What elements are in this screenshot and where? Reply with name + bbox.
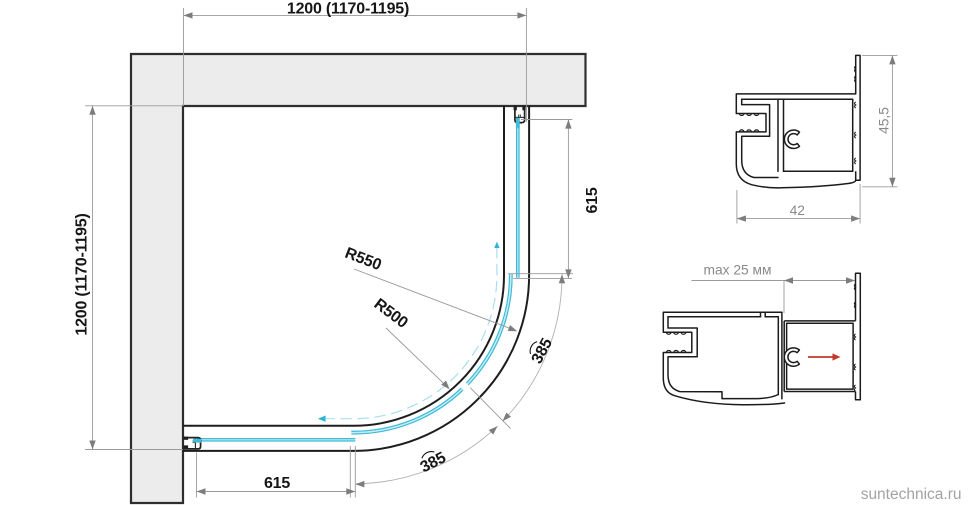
- svg-text:suntechnica.ru: suntechnica.ru: [861, 486, 962, 503]
- svg-text:1200 (1170-1195): 1200 (1170-1195): [287, 0, 409, 17]
- svg-text:615: 615: [264, 475, 290, 492]
- svg-text:max 25 мм: max 25 мм: [703, 263, 771, 278]
- svg-text:45,5: 45,5: [877, 107, 892, 134]
- svg-text:615: 615: [584, 187, 601, 213]
- svg-text:42: 42: [790, 203, 805, 218]
- svg-text:1200 (1170-1195): 1200 (1170-1195): [74, 213, 91, 335]
